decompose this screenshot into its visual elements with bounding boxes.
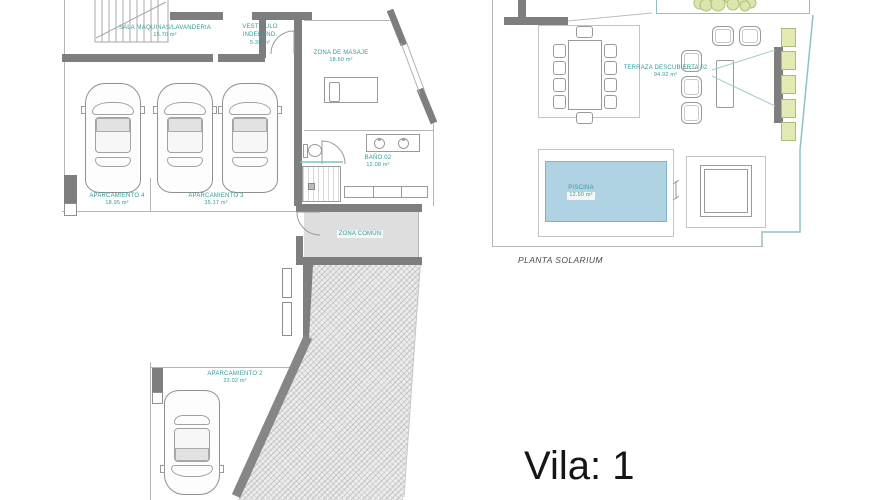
dining-chair bbox=[553, 61, 566, 75]
room-label-aparcamiento-3: APARCAMIENTO 3 35.17 m² bbox=[184, 192, 248, 208]
car-top-view bbox=[157, 83, 213, 193]
room-name: SALA MÁQUINAS/LAVANDERIA bbox=[90, 24, 240, 32]
plan-linework bbox=[0, 0, 890, 500]
room-label-aparcamiento-2: APARCAMIENTO 2 23.02 m² bbox=[202, 370, 268, 386]
bano-door-arc bbox=[322, 141, 345, 164]
bano-right-line bbox=[433, 124, 434, 206]
dining-chair bbox=[553, 95, 566, 109]
car-roof bbox=[95, 117, 132, 153]
villa-logo: Vila: 1 bbox=[524, 444, 684, 489]
dining-chair bbox=[604, 61, 617, 75]
wall-zona-comun-top bbox=[296, 204, 422, 212]
bench-lockers bbox=[344, 186, 428, 198]
room-area: 35.17 m² bbox=[184, 200, 248, 208]
car-mirror bbox=[81, 106, 86, 114]
wall-top-a bbox=[170, 12, 223, 20]
dining-chair bbox=[576, 26, 593, 38]
toilet-bowl bbox=[308, 144, 322, 157]
dining-chair bbox=[604, 95, 617, 109]
pillar-light bbox=[64, 203, 77, 216]
pillar-dark bbox=[152, 368, 163, 392]
lower-stall-left-line bbox=[150, 362, 151, 500]
sink-basin bbox=[398, 138, 409, 149]
room-name: VESTÍBULO bbox=[234, 23, 286, 31]
shower-drain bbox=[308, 183, 315, 190]
diagonal-window-wall bbox=[390, 10, 434, 123]
lounge-chair bbox=[681, 102, 702, 124]
locker-divider bbox=[373, 187, 374, 197]
room-label-bano-02: BAÑO 02 12.08 m² bbox=[348, 154, 408, 170]
room-name: ZONA DE MASAJE bbox=[305, 49, 377, 57]
wall-zona-comun-left bbox=[296, 236, 303, 257]
car-rear-window bbox=[232, 157, 268, 167]
planter-box bbox=[781, 75, 796, 94]
room-name: APARCAMIENTO 3 bbox=[184, 192, 248, 200]
car-roof bbox=[167, 117, 204, 153]
room-label-zona-comun: ZONA COMÚN bbox=[316, 230, 404, 238]
car-rear-window bbox=[167, 157, 203, 167]
room-name: TERRAZA DESCUBIERTA 02 bbox=[618, 64, 713, 72]
corridor-opening bbox=[282, 302, 292, 336]
solarium-boundary-left bbox=[492, 0, 493, 247]
room-label-aparcamiento-4: APARCAMIENTO 4 18.95 m² bbox=[86, 192, 148, 208]
solarium-roof-diagonal bbox=[568, 13, 652, 21]
car-sunroof bbox=[233, 118, 268, 132]
masaje-top-line bbox=[304, 20, 390, 21]
wall-solarium-corner-h bbox=[504, 17, 568, 25]
room-area: 12.08 m² bbox=[348, 162, 408, 170]
car-windshield bbox=[92, 102, 133, 115]
room-label-zona-masaje: ZONA DE MASAJE 18.50 m² bbox=[305, 49, 377, 65]
coffee-table bbox=[716, 60, 734, 108]
vanity-counter bbox=[366, 134, 420, 152]
car-roof bbox=[232, 117, 269, 153]
planter-strip-outline bbox=[656, 0, 810, 14]
lounge-chair bbox=[712, 26, 734, 46]
room-name: APARCAMIENTO 4 bbox=[86, 192, 148, 200]
wall-sala-bottom-left bbox=[62, 54, 213, 62]
car-rear-window bbox=[95, 157, 131, 167]
room-area: 94.92 m² bbox=[618, 72, 713, 80]
car-top-view bbox=[85, 83, 141, 193]
dining-chair bbox=[604, 78, 617, 92]
pillar-light bbox=[152, 392, 163, 404]
floorplan-sheet: SALA MÁQUINAS/LAVANDERIA 15.70 m² VESTÍB… bbox=[0, 0, 890, 500]
wall-zona-comun-bottom bbox=[296, 257, 422, 265]
car-sunroof bbox=[96, 118, 131, 132]
room-area: 5.28 m² bbox=[234, 40, 286, 48]
room-label-vestibulo: VESTÍBULO INDEPEND. 5.28 m² bbox=[234, 23, 286, 47]
car-sunroof bbox=[175, 448, 210, 461]
car-windshield bbox=[164, 102, 205, 115]
massage-table bbox=[324, 77, 378, 103]
car-rear-window bbox=[174, 415, 210, 424]
car-mirror bbox=[212, 106, 217, 114]
car-windshield bbox=[229, 102, 270, 115]
wall-masaje-left bbox=[294, 20, 302, 206]
wall-sala-bottom-right bbox=[218, 54, 265, 62]
sink-basin bbox=[374, 138, 385, 149]
lounge-chair bbox=[739, 26, 761, 46]
car-mirror bbox=[277, 106, 282, 114]
room-area: 15.70 m² bbox=[90, 32, 240, 40]
room-label-piscina: PISCINA 12.50 m² bbox=[551, 184, 611, 200]
lower-stall-top-line bbox=[150, 367, 300, 368]
room-area: 18.50 m² bbox=[305, 57, 377, 65]
room-name: APARCAMIENTO 2 bbox=[202, 370, 268, 378]
dining-chair bbox=[553, 44, 566, 58]
dining-table bbox=[568, 40, 602, 110]
car-mirror bbox=[219, 465, 224, 473]
corridor-opening bbox=[282, 268, 292, 298]
car-mirror bbox=[140, 106, 145, 114]
room-area: 18.95 m² bbox=[86, 200, 148, 208]
car-mirror bbox=[160, 465, 165, 473]
room-name-2: INDEPEND. bbox=[234, 31, 286, 39]
locker-divider bbox=[401, 187, 402, 197]
car-top-view bbox=[164, 390, 220, 495]
room-name: BAÑO 02 bbox=[348, 154, 408, 162]
car-mirror bbox=[218, 106, 223, 114]
solarium-boundary-bottom bbox=[492, 246, 763, 247]
room-area: 23.02 m² bbox=[202, 378, 268, 386]
massage-pillow bbox=[329, 82, 340, 102]
planter-box bbox=[781, 99, 796, 118]
bano-divider-line bbox=[304, 130, 434, 131]
room-area: 12.50 m² bbox=[567, 192, 594, 200]
dining-chair bbox=[553, 78, 566, 92]
wall-solarium-corner-v bbox=[518, 0, 526, 17]
skylight-frame-inner bbox=[704, 169, 748, 213]
planter-box bbox=[781, 122, 796, 141]
room-label-sala-maquinas: SALA MÁQUINAS/LAVANDERIA 15.70 m² bbox=[90, 24, 240, 40]
car-top-view bbox=[222, 83, 278, 193]
car-mirror bbox=[153, 106, 158, 114]
pillar-dark bbox=[64, 175, 77, 203]
planter-box bbox=[781, 28, 796, 47]
planter-box bbox=[781, 51, 796, 70]
room-label-terraza: TERRAZA DESCUBIERTA 02 94.92 m² bbox=[618, 64, 713, 80]
plan-caption: PLANTA SOLARIUM bbox=[518, 255, 648, 265]
room-name: PISCINA bbox=[551, 184, 611, 192]
room-name: ZONA COMÚN bbox=[337, 230, 384, 238]
car-sunroof bbox=[168, 118, 203, 132]
dining-chair bbox=[576, 112, 593, 124]
garage-row-line bbox=[62, 211, 302, 212]
dining-chair bbox=[604, 44, 617, 58]
stall-divider bbox=[150, 178, 151, 211]
car-roof bbox=[174, 428, 211, 463]
